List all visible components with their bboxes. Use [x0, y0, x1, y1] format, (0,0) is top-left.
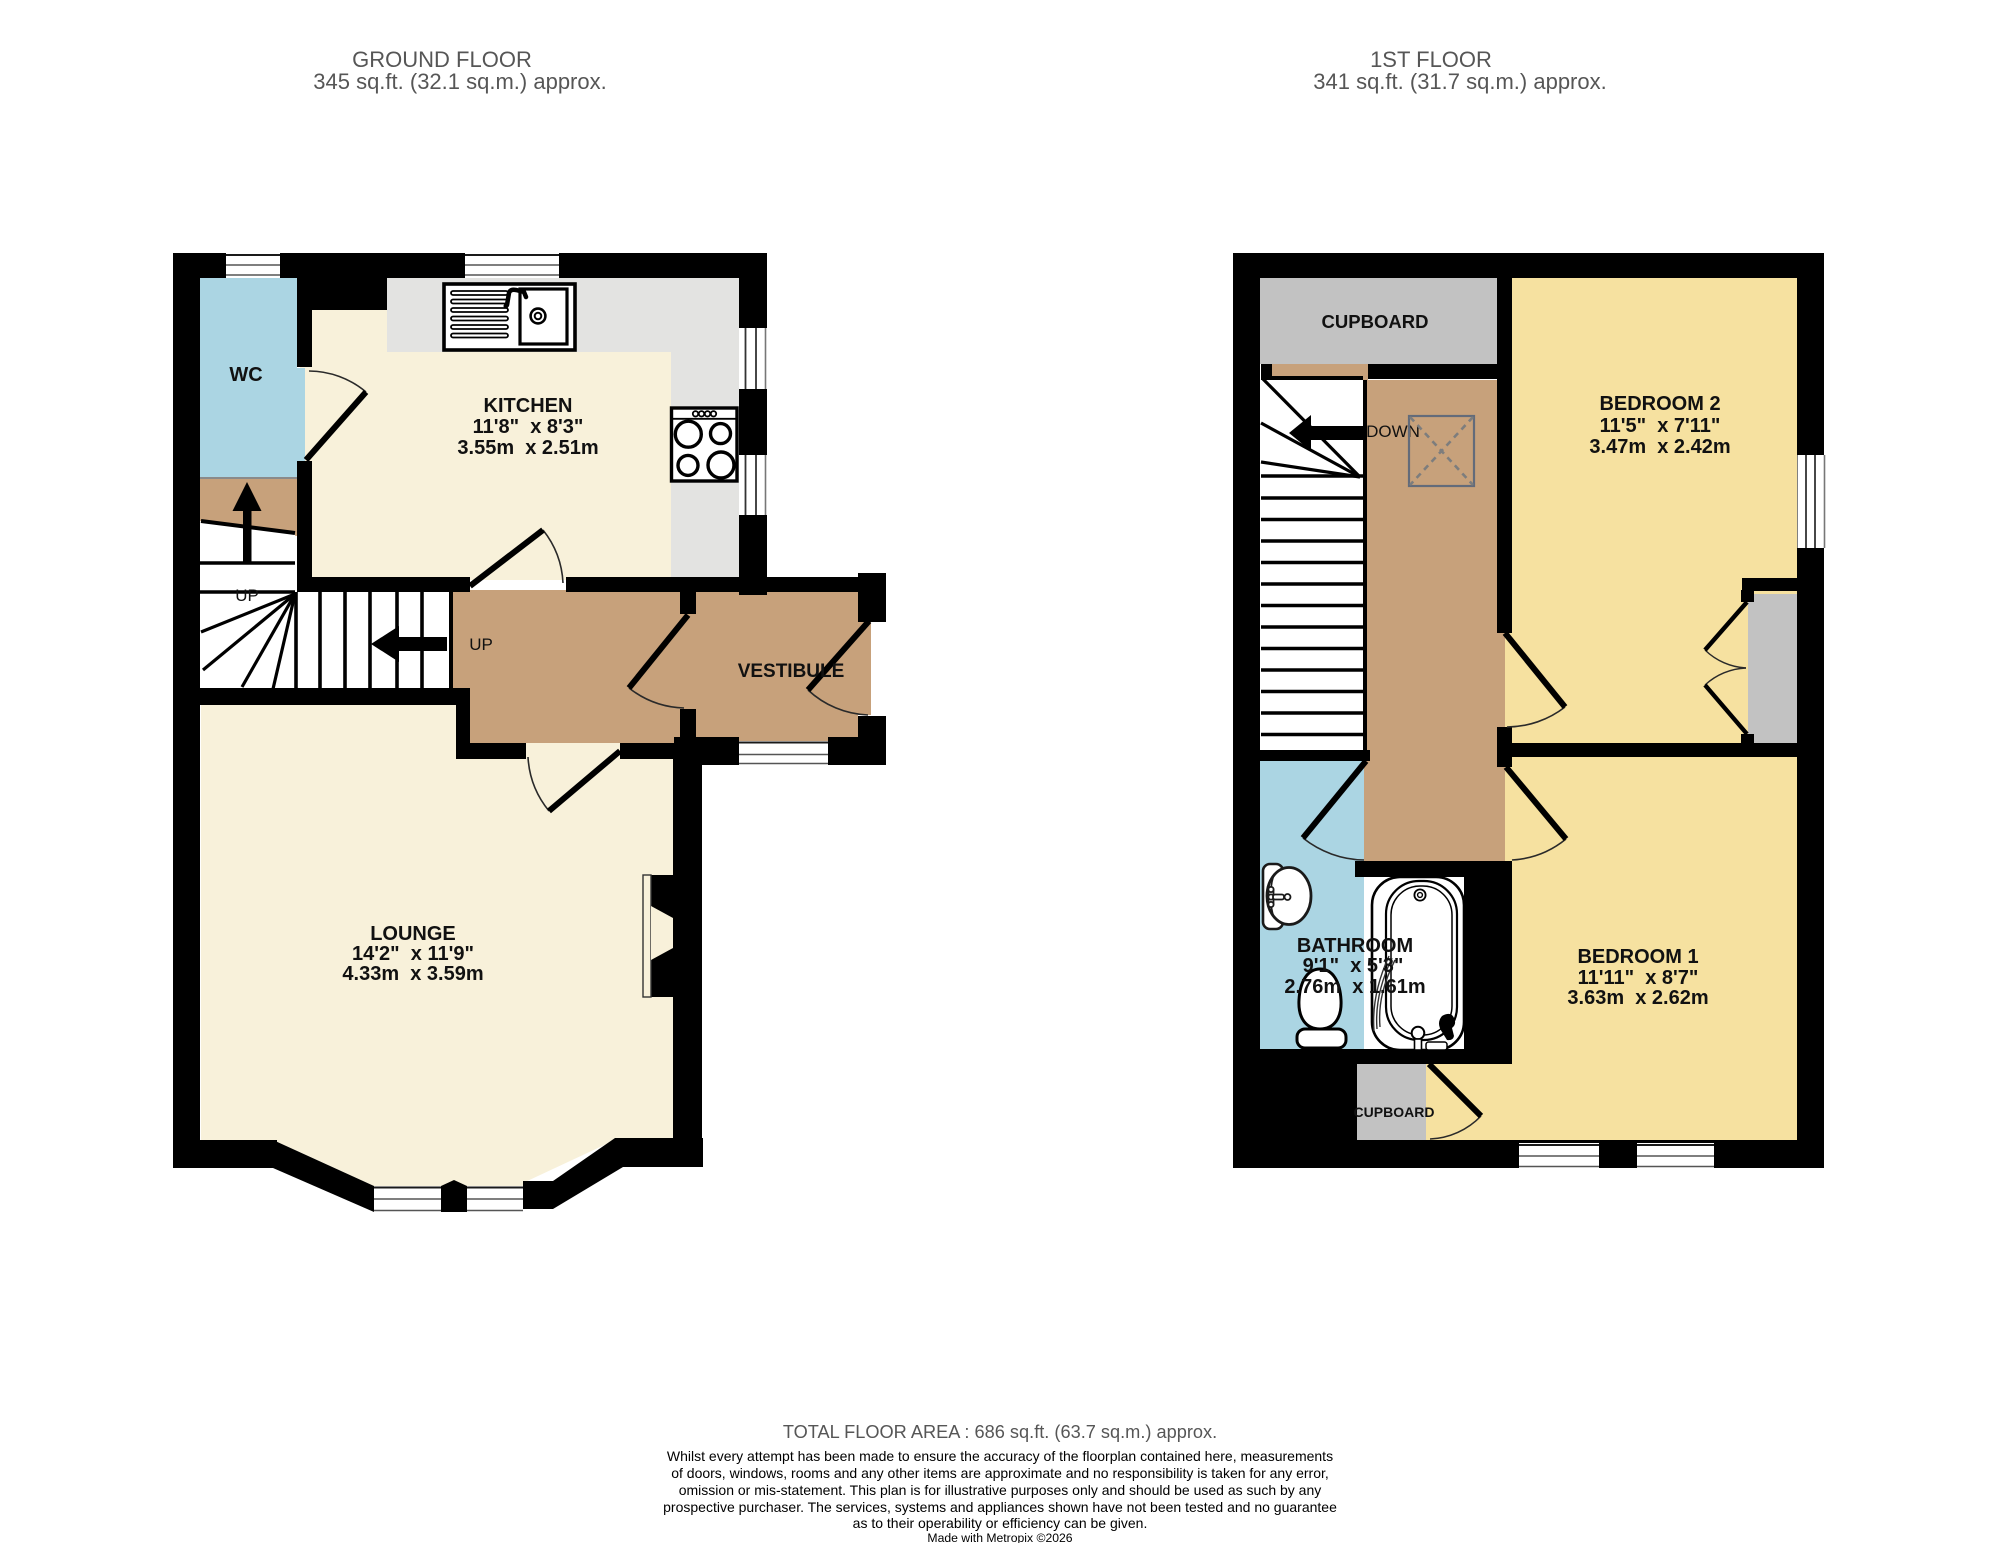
svg-text:BATHROOM: BATHROOM [1297, 935, 1413, 957]
svg-text:11'8" x 8'3": 11'8" x 8'3" [473, 416, 584, 438]
svg-text:4.33m x 3.59m: 4.33m x 3.59m [342, 963, 483, 985]
svg-text:3.55m x 2.51m: 3.55m x 2.51m [457, 437, 598, 459]
svg-text:UP: UP [469, 635, 493, 654]
svg-text:9'1" x 5'3": 9'1" x 5'3" [1303, 955, 1404, 977]
svg-text:VESTIBULE: VESTIBULE [738, 661, 845, 682]
svg-text:Whilst every attempt has been: Whilst every attempt has been made to en… [667, 1448, 1333, 1464]
svg-text:prospective purchaser. The ser: prospective purchaser. The services, sys… [663, 1499, 1337, 1515]
svg-text:14'2" x 11'9": 14'2" x 11'9" [352, 943, 474, 965]
svg-text:3.63m x 2.62m: 3.63m x 2.62m [1567, 987, 1708, 1009]
svg-text:DOWN: DOWN [1366, 422, 1420, 441]
svg-text:345 sq.ft. (32.1 sq.m.) approx: 345 sq.ft. (32.1 sq.m.) approx. [313, 69, 606, 94]
svg-text:BEDROOM 2: BEDROOM 2 [1599, 393, 1720, 415]
svg-text:11'11" x 8'7": 11'11" x 8'7" [1578, 967, 1699, 989]
svg-text:KITCHEN: KITCHEN [484, 395, 573, 417]
svg-text:TOTAL FLOOR AREA : 686 sq.ft.: TOTAL FLOOR AREA : 686 sq.ft. (63.7 sq.m… [783, 1422, 1217, 1442]
svg-text:WC: WC [229, 364, 262, 386]
svg-text:BEDROOM 1: BEDROOM 1 [1577, 946, 1698, 968]
svg-text:UP: UP [235, 586, 259, 605]
svg-text:3.47m x 2.42m: 3.47m x 2.42m [1589, 436, 1730, 458]
svg-text:CUPBOARD: CUPBOARD [1322, 311, 1429, 332]
svg-text:as to their operability or eff: as to their operability or efficiency ca… [853, 1515, 1148, 1531]
svg-text:CUPBOARD: CUPBOARD [1354, 1104, 1435, 1120]
svg-text:2.76m x 1.61m: 2.76m x 1.61m [1284, 976, 1425, 998]
svg-text:omission or mis-statement. Thi: omission or mis-statement. This plan is … [679, 1482, 1322, 1498]
svg-text:11'5" x 7'11": 11'5" x 7'11" [1600, 415, 1721, 437]
svg-text:LOUNGE: LOUNGE [370, 923, 456, 945]
svg-text:of doors, windows, rooms and a: of doors, windows, rooms and any other i… [671, 1465, 1329, 1481]
svg-text:Made with Metropix ©2026: Made with Metropix ©2026 [927, 1531, 1072, 1543]
svg-text:341 sq.ft. (31.7 sq.m.) approx: 341 sq.ft. (31.7 sq.m.) approx. [1313, 69, 1606, 94]
